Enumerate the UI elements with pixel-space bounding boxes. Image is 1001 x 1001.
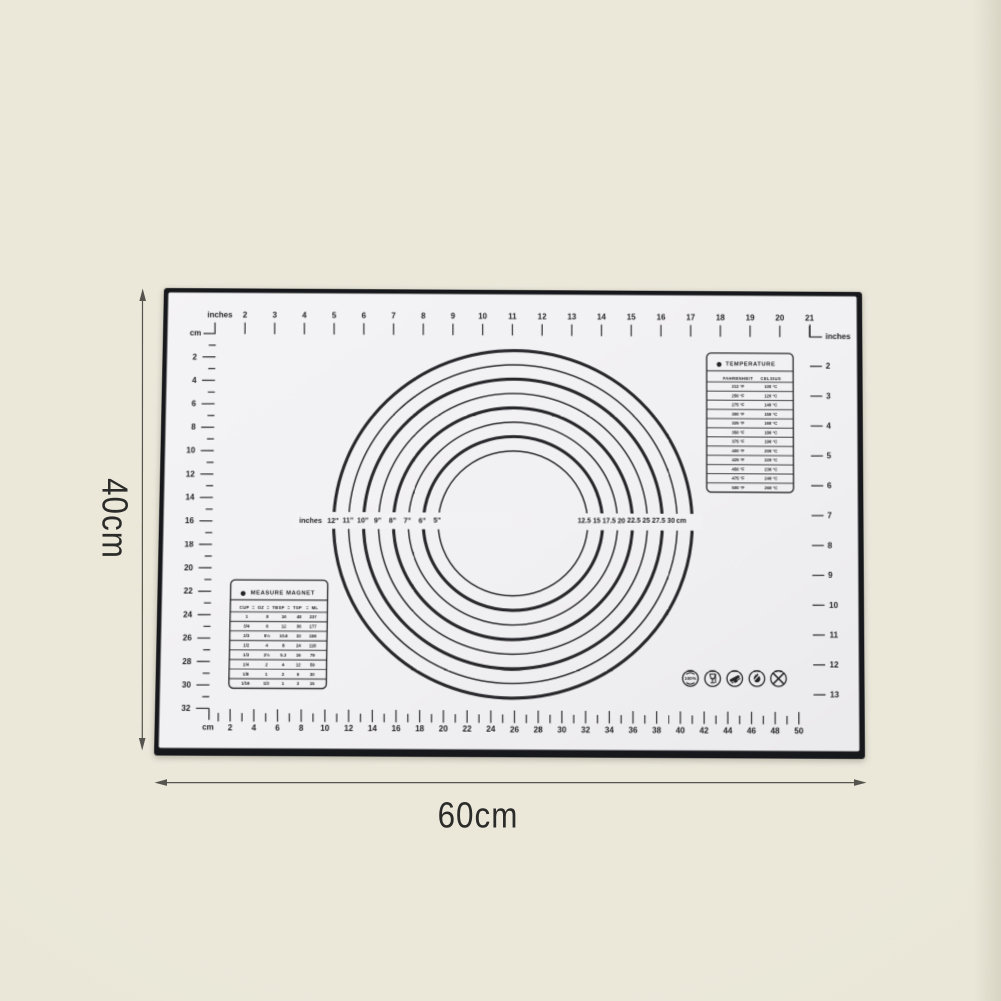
svg-text:36: 36 — [628, 725, 638, 734]
svg-text:22: 22 — [463, 725, 473, 734]
svg-text:4: 4 — [192, 376, 197, 385]
svg-text:2: 2 — [243, 310, 248, 319]
svg-text:275 °F: 275 °F — [732, 402, 745, 407]
svg-text:190 °C: 190 °C — [764, 439, 777, 444]
svg-text:3/4: 3/4 — [243, 624, 250, 629]
svg-text:24: 24 — [486, 725, 496, 734]
svg-text:24: 24 — [183, 610, 193, 619]
svg-text:16: 16 — [281, 614, 287, 619]
svg-text:6: 6 — [827, 481, 832, 490]
svg-text:12.5: 12.5 — [578, 518, 592, 525]
svg-text:32: 32 — [581, 725, 591, 734]
svg-text:18: 18 — [415, 724, 425, 733]
svg-text:26: 26 — [510, 725, 520, 734]
svg-text:100%: 100% — [685, 676, 697, 681]
svg-text:15: 15 — [310, 681, 316, 686]
svg-text:2: 2 — [826, 362, 831, 371]
svg-text:1/16: 1/16 — [241, 681, 250, 686]
svg-text:375 °F: 375 °F — [732, 439, 745, 444]
svg-text:16: 16 — [391, 724, 401, 733]
svg-text:9: 9 — [451, 312, 456, 321]
svg-text:118: 118 — [309, 643, 317, 648]
svg-text:212 °F: 212 °F — [732, 384, 745, 389]
svg-text:5: 5 — [332, 311, 337, 320]
svg-text:350 °F: 350 °F — [732, 430, 745, 435]
svg-text:9: 9 — [828, 571, 833, 580]
svg-text:32: 32 — [181, 704, 191, 713]
svg-text:17.5: 17.5 — [602, 518, 616, 525]
svg-text:20: 20 — [184, 563, 194, 572]
svg-text:230 °C: 230 °C — [764, 467, 777, 472]
svg-text:140 °C: 140 °C — [764, 403, 777, 408]
svg-text:30: 30 — [310, 672, 316, 677]
svg-text:325 °F: 325 °F — [732, 421, 745, 426]
svg-text:4: 4 — [302, 311, 307, 320]
svg-text:5: 5 — [827, 451, 832, 460]
svg-text:1/8: 1/8 — [243, 671, 250, 676]
svg-text:240 °C: 240 °C — [765, 476, 778, 481]
svg-text:5.3: 5.3 — [280, 652, 287, 657]
svg-text:21: 21 — [805, 314, 815, 323]
svg-text:59: 59 — [310, 662, 316, 667]
svg-text:10: 10 — [186, 446, 196, 455]
svg-text:cm: cm — [676, 518, 686, 525]
svg-text:7: 7 — [391, 311, 396, 320]
svg-text:20: 20 — [775, 314, 785, 323]
svg-text:inches: inches — [299, 518, 322, 525]
svg-text:25: 25 — [642, 518, 650, 525]
svg-text:3: 3 — [826, 392, 831, 401]
svg-text:8: 8 — [828, 541, 833, 550]
svg-text:2/3: 2/3 — [243, 633, 250, 638]
svg-text:100 °C: 100 °C — [764, 384, 777, 389]
svg-text:18: 18 — [184, 540, 194, 549]
svg-text:2: 2 — [228, 723, 233, 732]
svg-text:7": 7" — [404, 518, 412, 525]
svg-text:17: 17 — [686, 313, 696, 322]
svg-text:10: 10 — [829, 601, 839, 610]
svg-text:160 °C: 160 °C — [764, 421, 777, 426]
svg-text:10: 10 — [478, 312, 488, 321]
svg-text:cm: cm — [202, 722, 214, 731]
svg-text:450 °F: 450 °F — [732, 467, 745, 472]
svg-text:46: 46 — [747, 726, 757, 735]
svg-text:26: 26 — [183, 633, 193, 642]
svg-text:48: 48 — [297, 614, 303, 619]
svg-text:177: 177 — [309, 624, 317, 629]
svg-text:120 °C: 120 °C — [764, 393, 777, 398]
svg-text:14: 14 — [597, 313, 607, 322]
svg-text:14: 14 — [185, 493, 195, 502]
svg-text:425 °F: 425 °F — [732, 457, 745, 462]
svg-text:300 °F: 300 °F — [732, 412, 745, 417]
svg-text:24: 24 — [296, 643, 302, 648]
svg-text:15: 15 — [627, 313, 637, 322]
svg-text:inches: inches — [825, 332, 851, 341]
svg-text:16: 16 — [656, 313, 666, 322]
svg-text:20: 20 — [618, 518, 626, 525]
svg-text:TEMPERATURE: TEMPERATURE — [726, 361, 776, 367]
svg-text:150 °C: 150 °C — [764, 412, 777, 417]
svg-text:42: 42 — [700, 726, 710, 735]
svg-text:30: 30 — [182, 680, 192, 689]
svg-text:FAHRENHEIT: FAHRENHEIT — [723, 376, 753, 381]
svg-text:10": 10" — [357, 518, 369, 525]
svg-text:180 °C: 180 °C — [764, 430, 777, 435]
svg-text:5⅓: 5⅓ — [264, 633, 271, 638]
svg-text:16: 16 — [296, 652, 302, 657]
svg-text:12: 12 — [830, 660, 840, 669]
svg-text:6: 6 — [275, 724, 280, 733]
svg-text:44: 44 — [723, 726, 733, 735]
svg-text:1/2: 1/2 — [243, 643, 250, 648]
svg-text:12: 12 — [538, 312, 548, 321]
svg-text:18: 18 — [716, 313, 726, 322]
svg-text:10: 10 — [320, 724, 330, 733]
svg-text:5": 5" — [433, 518, 440, 525]
svg-text:400 °F: 400 °F — [732, 448, 745, 453]
svg-text:28: 28 — [534, 725, 544, 734]
svg-text:8: 8 — [421, 312, 426, 321]
svg-text:11: 11 — [830, 630, 839, 639]
svg-text:6": 6" — [419, 518, 426, 525]
svg-text:32: 32 — [296, 633, 302, 638]
svg-text:20: 20 — [439, 724, 449, 733]
svg-text:34: 34 — [605, 725, 615, 734]
svg-text:1/4: 1/4 — [243, 662, 250, 667]
svg-text:260 °C: 260 °C — [765, 485, 778, 490]
svg-text:7: 7 — [827, 511, 832, 520]
svg-text:475 °F: 475 °F — [732, 476, 745, 481]
svg-text:12: 12 — [344, 724, 354, 733]
svg-text:12: 12 — [186, 469, 196, 478]
svg-text:200 °C: 200 °C — [764, 448, 777, 453]
svg-text:12": 12" — [327, 518, 339, 525]
svg-text:220 °C: 220 °C — [764, 458, 777, 463]
svg-text:cm: cm — [190, 328, 202, 337]
svg-text:158: 158 — [309, 633, 317, 638]
svg-text:60cm: 60cm — [438, 795, 519, 836]
svg-text:28: 28 — [182, 657, 192, 666]
svg-text:237: 237 — [309, 614, 317, 619]
svg-text:40cm: 40cm — [94, 478, 135, 559]
svg-text:12: 12 — [281, 624, 287, 629]
svg-text:8": 8" — [389, 518, 397, 525]
svg-text:11": 11" — [342, 518, 353, 525]
svg-text:30: 30 — [557, 725, 567, 734]
svg-text:13: 13 — [830, 690, 840, 699]
svg-text:38: 38 — [652, 726, 662, 735]
svg-text:4: 4 — [251, 723, 256, 732]
svg-text:MEASURE MAGNET: MEASURE MAGNET — [251, 590, 315, 596]
svg-text:500 °F: 500 °F — [732, 485, 745, 490]
svg-text:9": 9" — [374, 518, 382, 525]
svg-text:12: 12 — [296, 662, 302, 667]
svg-text:1/3: 1/3 — [243, 652, 250, 657]
svg-text:48: 48 — [771, 726, 781, 735]
svg-text:27.5: 27.5 — [652, 518, 666, 525]
svg-text:36: 36 — [296, 624, 302, 629]
svg-text:1/2: 1/2 — [263, 681, 270, 686]
svg-text:CELSIUS: CELSIUS — [761, 376, 782, 381]
svg-text:6: 6 — [362, 311, 367, 320]
svg-text:50: 50 — [794, 726, 804, 735]
svg-text:inches: inches — [207, 310, 233, 319]
svg-text:40: 40 — [676, 726, 686, 735]
svg-text:13: 13 — [567, 312, 577, 321]
svg-text:22: 22 — [184, 587, 194, 596]
svg-text:19: 19 — [746, 313, 756, 322]
svg-text:14: 14 — [368, 724, 378, 733]
svg-text:2⅔: 2⅔ — [264, 652, 271, 657]
svg-text:22.5: 22.5 — [627, 518, 641, 525]
svg-text:10.6: 10.6 — [279, 633, 288, 638]
svg-text:CUP = OZ = TBSP = TSP: CUP = OZ = TBSP = TSP = ML — [239, 605, 318, 611]
svg-text:16: 16 — [185, 516, 195, 525]
svg-text:8: 8 — [191, 423, 196, 432]
svg-text:15: 15 — [593, 518, 601, 525]
svg-text:8: 8 — [299, 724, 304, 733]
svg-text:79: 79 — [310, 653, 316, 658]
svg-text:250 °F: 250 °F — [732, 393, 745, 398]
svg-text:3: 3 — [272, 311, 277, 320]
svg-text:30: 30 — [667, 518, 675, 525]
svg-text:2: 2 — [192, 352, 197, 361]
svg-text:4: 4 — [826, 421, 831, 430]
svg-text:11: 11 — [508, 312, 517, 321]
svg-text:6: 6 — [192, 399, 197, 408]
